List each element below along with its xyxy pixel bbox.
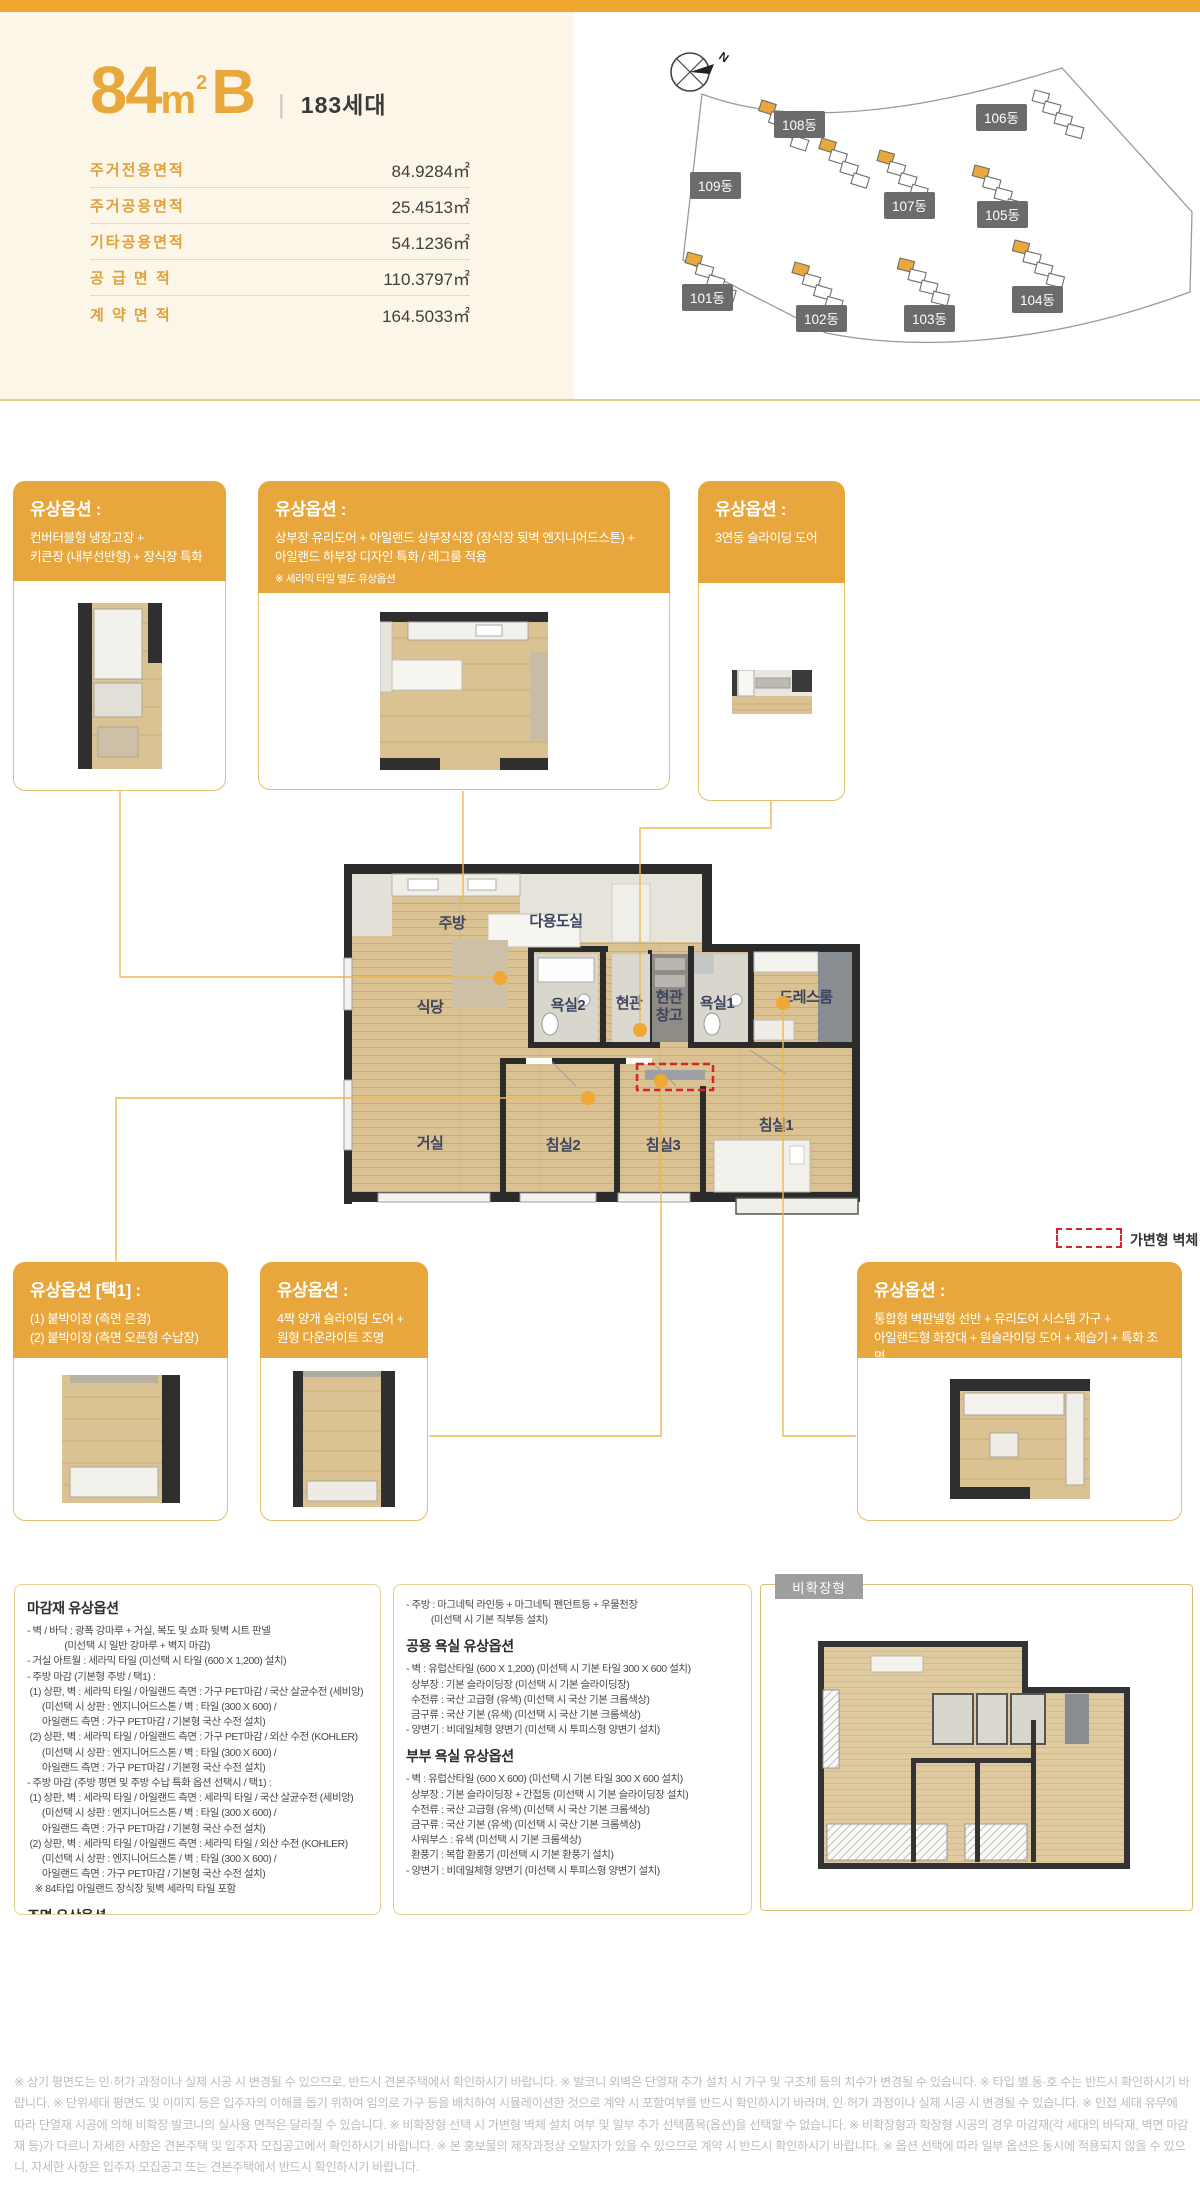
area-value: 110.3797㎡ — [383, 265, 470, 290]
list-item: 상부장 유리도어 + 아일랜드 상부장식장 (장식장 뒷벽 엔지니어드스톤) + — [275, 529, 653, 548]
list-item: 금구류 : 국산 기본 (유색) (미선택 시 국산 기본 크롬색상) — [406, 1818, 739, 1833]
list-item: (1) 상판, 벽 : 세라믹 타일 / 아일랜드 측면 : 세라믹 타일 / … — [27, 1791, 368, 1806]
list-item: (미선택 시 상판 : 엔지니어드스톤 / 벽 : 타일 (300 X 600)… — [27, 1700, 368, 1715]
door-gap-bed2 — [526, 1058, 552, 1064]
list-item: ※ 84타입 아일랜드 장식장 뒷벽 세라믹 타일 포함 — [27, 1882, 368, 1897]
toilet-bath2 — [542, 1013, 558, 1035]
option-card-title: 유상옵션 : — [30, 495, 209, 520]
room-label-bath2: 욕실2 — [551, 997, 586, 1014]
list-item: 아일랜드 측면 : 가구 PET마감 / 기본형 국산 수전 설치) — [27, 1822, 368, 1837]
list-item: 샤워부스 : 유색 (미선택 시 기본 크롬색상) — [406, 1833, 739, 1848]
list-item: (미선택 시 상판 : 엔지니어드스톤 / 벽 : 타일 (300 X 600)… — [27, 1852, 368, 1867]
list-item: (2) 상판, 벽 : 세라믹 타일 / 아일랜드 측면 : 가구 PET마감 … — [27, 1730, 368, 1745]
option-card-1: 유상옵션 : 컨버터블형 냉장고장 +키큰장 (내부선반형) + 장식장 특화 — [13, 481, 226, 791]
brochure-page: 84 m 2 B | 183세대 주거전용면적 84.9284㎡ 주거공용면적 … — [0, 0, 1200, 2193]
list-item: (미선택 시 기본 직부등 설치) — [406, 1613, 739, 1628]
option-card-lines: 4짝 양개 슬라이딩 도어 +원형 다운라이트 조명 — [277, 1310, 411, 1348]
option-image-kitchen — [380, 612, 548, 770]
type-size-unit: m — [161, 78, 197, 123]
list-item: 원형 다운라이트 조명 — [277, 1329, 411, 1348]
pillow — [790, 1146, 804, 1164]
building-badge-103: 103동 — [904, 305, 955, 332]
building-badge-104: 104동 — [1012, 286, 1063, 313]
type-size-number: 84 — [90, 52, 161, 129]
lighting-options-cont-lines: - 주방 : 마그네틱 라인등 + 마그네틱 펜던트등 + 우물천장 (미선택 … — [406, 1598, 739, 1628]
list-item: (1) 상판, 벽 : 세라믹 타일 / 아일랜드 측면 : 가구 PET마감 … — [27, 1685, 368, 1700]
list-item: - 주방 : 마그네틱 라인등 + 마그네틱 펜던트등 + 우물천장 — [406, 1598, 739, 1613]
list-item: 3연동 슬라이딩 도어 — [715, 529, 828, 548]
storage-shelf — [655, 975, 685, 987]
room-label-bed1: 침실1 — [759, 1117, 794, 1134]
area-value: 84.9284㎡ — [392, 157, 470, 182]
utility-balcony — [736, 1198, 858, 1214]
households-count: 183세대 — [301, 86, 387, 120]
area-value: 25.4513㎡ — [392, 193, 470, 218]
title-divider: | — [278, 89, 285, 120]
bathtub — [538, 958, 594, 982]
list-item: 상부장 : 기본 슬라이딩장 + 간접등 (미선택 시 기본 슬라이딩장 설치) — [406, 1788, 739, 1803]
entry-porch — [612, 884, 650, 942]
table-row: 계 약 면 적 164.5033㎡ — [90, 296, 470, 332]
bath-options-panel: - 주방 : 마그네틱 라인등 + 마그네틱 펜던트등 + 우물천장 (미선택 … — [393, 1584, 752, 1915]
tall-cabinet — [452, 940, 508, 1008]
list-item: - 거실 아트월 : 세라믹 타일 (미선택 시 타일 (600 X 1,200… — [27, 1654, 368, 1669]
kitchen-stove — [408, 879, 438, 890]
common-bath-lines: - 벽 : 유럽산타일 (600 X 1,200) (미선택 시 기본 타일 3… — [406, 1662, 739, 1738]
master-bath-heading: 부부 욕실 유상옵션 — [406, 1746, 739, 1766]
unit-type-title: 84 m 2 B | 183세대 — [90, 52, 386, 129]
list-item: 아일랜드 하부장 디자인 특화 / 레그룸 적용 — [275, 548, 653, 567]
list-item: 금구류 : 국산 기본 (유색) (미선택 시 국산 기본 크롬색상) — [406, 1708, 739, 1723]
room-label-entry: 현관 — [616, 995, 643, 1012]
option-card-note: ※ 세라믹 타일 별도 유상옵션 — [275, 571, 653, 586]
option-card-4-body — [13, 1358, 228, 1521]
option-card-4: 유상옵션 [택1] : (1) 붙박이장 (측면 은경)(2) 붙박이장 (측면… — [13, 1262, 228, 1521]
list-item: - 벽 : 유럽산타일 (600 X 1,200) (미선택 시 기본 타일 3… — [406, 1662, 739, 1677]
building-badge-105: 105동 — [977, 201, 1028, 228]
movable-wall-segment — [645, 1070, 705, 1080]
storage-shelf — [655, 958, 685, 970]
list-item: - 주방 마감 (기본형 주방 / 택1) : — [27, 1670, 368, 1685]
list-item: - 주방 마감 (주방 평면 및 주방 수납 특화 옵션 선택시 / 택1) : — [27, 1776, 368, 1791]
option-image-sliding-door — [732, 670, 812, 714]
table-row: 공 급 면 적 110.3797㎡ — [90, 260, 470, 296]
table-row: 주거전용면적 84.9284㎡ — [90, 152, 470, 188]
room-label-bath1: 욕실1 — [700, 995, 735, 1012]
list-item: (2) 붙박이장 (측면 오픈형 수납장) — [30, 1329, 211, 1348]
kitchen-sink — [468, 879, 496, 890]
finish-options-lines: - 벽 / 바닥 : 광폭 강마루 + 거실, 복도 및 쇼파 뒷벽 시트 판넬… — [27, 1624, 368, 1898]
list-item: 수전류 : 국산 고급형 (유색) (미선택 시 국산 기본 크롬색상) — [406, 1693, 739, 1708]
area-label: 주거공용면적 — [90, 195, 185, 216]
building-badge-106: 106동 — [976, 104, 1027, 131]
option-card-title: 유상옵션 : — [275, 495, 653, 520]
building-badge-102: 102동 — [796, 305, 847, 332]
section-divider — [0, 399, 1200, 401]
floor-utility-corner — [352, 872, 392, 936]
building-badge-108: 108동 — [774, 111, 825, 138]
option-card-5-body — [260, 1358, 428, 1521]
unexpanded-plan-badge: 비확장형 — [775, 1574, 863, 1599]
movable-wall-legend-swatch — [1056, 1228, 1122, 1248]
list-item: (미선택 시 상판 : 엔지니어드스톤 / 벽 : 타일 (300 X 600)… — [27, 1806, 368, 1821]
list-item: 수전류 : 국산 고급형 (유색) (미선택 시 국산 기본 크롬색상) — [406, 1803, 739, 1818]
option-card-1-body — [13, 581, 226, 791]
master-bath-lines: - 벽 : 유럽산타일 (600 X 600) (미선택 시 기본 타일 300… — [406, 1772, 739, 1878]
option-card-lines: (1) 붙박이장 (측면 은경)(2) 붙박이장 (측면 오픈형 수납장) — [30, 1310, 211, 1348]
table-row: 주거공용면적 25.4513㎡ — [90, 188, 470, 224]
option-card-lines: 컨버터블형 냉장고장 +키큰장 (내부선반형) + 장식장 특화 — [30, 529, 209, 567]
area-label: 주거전용면적 — [90, 159, 185, 180]
area-table: 주거전용면적 84.9284㎡ 주거공용면적 25.4513㎡ 기타공용면적 5… — [90, 152, 470, 332]
common-bath-heading: 공용 욕실 유상옵션 — [406, 1636, 739, 1656]
building-badge-101: 101동 — [682, 284, 733, 311]
list-item: - 양변기 : 비데일체형 양변기 (미선택 시 투피스형 양변기 설치) — [406, 1864, 739, 1879]
option-card-2: 유상옵션 : 상부장 유리도어 + 아일랜드 상부장식장 (장식장 뒷벽 엔지니… — [258, 481, 670, 790]
list-item: 통합형 벽판넬형 선반 + 유리도어 시스템 가구 + — [874, 1310, 1165, 1329]
dressroom-cabinet — [754, 952, 818, 972]
area-value: 54.1236㎡ — [392, 229, 470, 254]
list-item: 아일랜드 측면 : 가구 PET마감 / 기본형 국산 수전 설치) — [27, 1715, 368, 1730]
option-image-fridge-cabinet — [78, 603, 162, 769]
movable-wall-legend-label: 가변형 벽체 — [1130, 1230, 1198, 1250]
room-label-dressroom: 드레스룸 — [779, 989, 833, 1006]
option-card-3: 유상옵션 : 3연동 슬라이딩 도어 — [698, 481, 845, 801]
finish-options-panel: 마감재 유상옵션 - 벽 / 바닥 : 광폭 강마루 + 거실, 복도 및 쇼파… — [14, 1584, 381, 1915]
option-card-lines: 3연동 슬라이딩 도어 — [715, 529, 828, 548]
area-label: 계 약 면 적 — [90, 304, 172, 325]
room-label-living: 거실 — [417, 1135, 444, 1152]
option-card-lines: 상부장 유리도어 + 아일랜드 상부장식장 (장식장 뒷벽 엔지니어드스톤) +… — [275, 529, 653, 567]
area-value: 164.5033㎡ — [382, 302, 470, 327]
compass-icon: N — [671, 49, 731, 91]
option-card-5: 유상옵션 : 4짝 양개 슬라이딩 도어 +원형 다운라이트 조명 — [260, 1262, 428, 1521]
room-label-entry-storage-1: 현관 — [656, 989, 683, 1006]
list-item: - 양변기 : 비데일체형 양변기 (미선택 시 투피스형 양변기 설치) — [406, 1723, 739, 1738]
finish-options-heading: 마감재 유상옵션 — [27, 1598, 368, 1618]
option-card-6: 유상옵션 : 통합형 벽판넬형 선반 + 유리도어 시스템 가구 +아일랜드형 … — [857, 1262, 1182, 1521]
area-label: 기타공용면적 — [90, 231, 185, 252]
type-variant: B — [211, 57, 256, 128]
option-card-3-header: 유상옵션 : 3연동 슬라이딩 도어 — [698, 481, 845, 583]
option-image-wardrobe — [62, 1375, 180, 1503]
option-card-1-header: 유상옵션 : 컨버터블형 냉장고장 +키큰장 (내부선반형) + 장식장 특화 — [13, 481, 226, 581]
list-item: - 벽 / 바닥 : 광폭 강마루 + 거실, 복도 및 쇼파 뒷벽 시트 판넬 — [27, 1624, 368, 1639]
list-item: 아일랜드 측면 : 가구 PET마감 / 기본형 국산 수전 설치) — [27, 1867, 368, 1882]
option-card-title: 유상옵션 : — [277, 1276, 411, 1301]
list-item: - 벽 : 유럽산타일 (600 X 600) (미선택 시 기본 타일 300… — [406, 1772, 739, 1787]
area-label: 공 급 면 적 — [90, 267, 172, 288]
option-image-dressroom — [950, 1379, 1090, 1499]
room-label-dining: 식당 — [417, 998, 444, 1016]
footer-disclaimer: ※ 상기 평면도는 인·허가 과정이나 실제 시공 시 변경될 수 있으므로, … — [14, 2072, 1190, 2179]
list-item: (미선택 시 상판 : 엔지니어드스톤 / 벽 : 타일 (300 X 600)… — [27, 1746, 368, 1761]
room-label-bed3: 침실3 — [646, 1137, 681, 1154]
table-row: 기타공용면적 54.1236㎡ — [90, 224, 470, 260]
toilet-bath1 — [704, 1013, 720, 1035]
building-badge-107: 107동 — [884, 192, 935, 219]
option-image-sliding-door-4panel — [293, 1371, 395, 1507]
list-item: 컨버터블형 냉장고장 + — [30, 529, 209, 548]
list-item: 상부장 : 기본 슬라이딩장 (미선택 시 기본 슬라이딩장) — [406, 1678, 739, 1693]
list-item: 아일랜드 측면 : 가구 PET마감 / 기본형 국산 수전 설치) — [27, 1761, 368, 1776]
room-label-kitchen: 주방 — [439, 914, 466, 932]
option-card-5-header: 유상옵션 : 4짝 양개 슬라이딩 도어 +원형 다운라이트 조명 — [260, 1262, 428, 1358]
option-card-4-header: 유상옵션 [택1] : (1) 붙박이장 (측면 은경)(2) 붙박이장 (측면… — [13, 1262, 228, 1358]
svg-text:N: N — [716, 49, 731, 65]
unexpanded-floorplan — [815, 1628, 1135, 1878]
list-item: (1) 붙박이장 (측면 은경) — [30, 1310, 211, 1329]
room-label-bed2: 침실2 — [546, 1137, 581, 1154]
room-label-utility: 다용도실 — [529, 913, 582, 930]
dressing-table — [754, 1020, 794, 1040]
shower-bath1 — [694, 954, 714, 974]
option-card-6-body — [857, 1358, 1182, 1521]
list-item: 환풍기 : 복합 환풍기 (미선택 시 기본 환풍기 설치) — [406, 1848, 739, 1863]
list-item: (미선택 시 일반 강마루 + 벽지 마감) — [27, 1639, 368, 1654]
top-accent-bar — [0, 0, 1200, 12]
option-card-title: 유상옵션 [택1] : — [30, 1276, 211, 1301]
main-floorplan: 주방 다용도실 식당 욕실2 현관 현관 창고 욕실1 드레스룸 거실 침실2 … — [330, 850, 875, 1225]
building-badge-109: 109동 — [690, 172, 741, 199]
list-item: 키큰장 (내부선반형) + 장식장 특화 — [30, 548, 209, 567]
list-item: 4짝 양개 슬라이딩 도어 + — [277, 1310, 411, 1329]
option-card-3-body — [698, 583, 845, 801]
room-label-entry-storage-2: 창고 — [656, 1007, 683, 1024]
option-card-2-body — [258, 593, 670, 790]
option-card-2-header: 유상옵션 : 상부장 유리도어 + 아일랜드 상부장식장 (장식장 뒷벽 엔지니… — [258, 481, 670, 593]
option-card-title: 유상옵션 : — [874, 1276, 1165, 1301]
type-size-exponent: 2 — [196, 72, 207, 95]
option-card-title: 유상옵션 : — [715, 495, 828, 520]
lighting-options-heading: 조명 유상옵션 — [27, 1906, 368, 1915]
option-card-6-header: 유상옵션 : 통합형 벽판넬형 선반 + 유리도어 시스템 가구 +아일랜드형 … — [857, 1262, 1182, 1358]
list-item: (2) 상판, 벽 : 세라믹 타일 / 아일랜드 측면 : 세라믹 타일 / … — [27, 1837, 368, 1852]
